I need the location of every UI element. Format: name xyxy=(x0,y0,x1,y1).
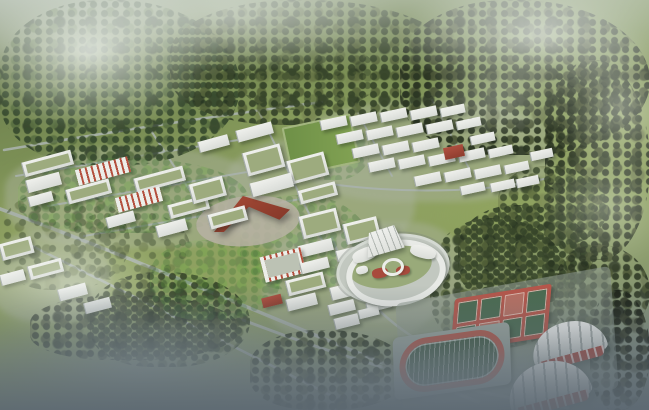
fan-library-wrap xyxy=(366,226,404,256)
fan-library-building xyxy=(365,224,406,258)
courtyard-garden xyxy=(246,147,282,173)
courtyard-garden xyxy=(302,211,337,235)
mountain-haze xyxy=(0,0,649,70)
mist-patch xyxy=(420,60,580,140)
courtyard-paving xyxy=(264,252,301,278)
valley-fog xyxy=(0,285,649,410)
aerial-campus-rendering xyxy=(0,0,649,410)
courtyard-garden xyxy=(290,155,326,181)
courtyard-garden xyxy=(193,179,224,200)
